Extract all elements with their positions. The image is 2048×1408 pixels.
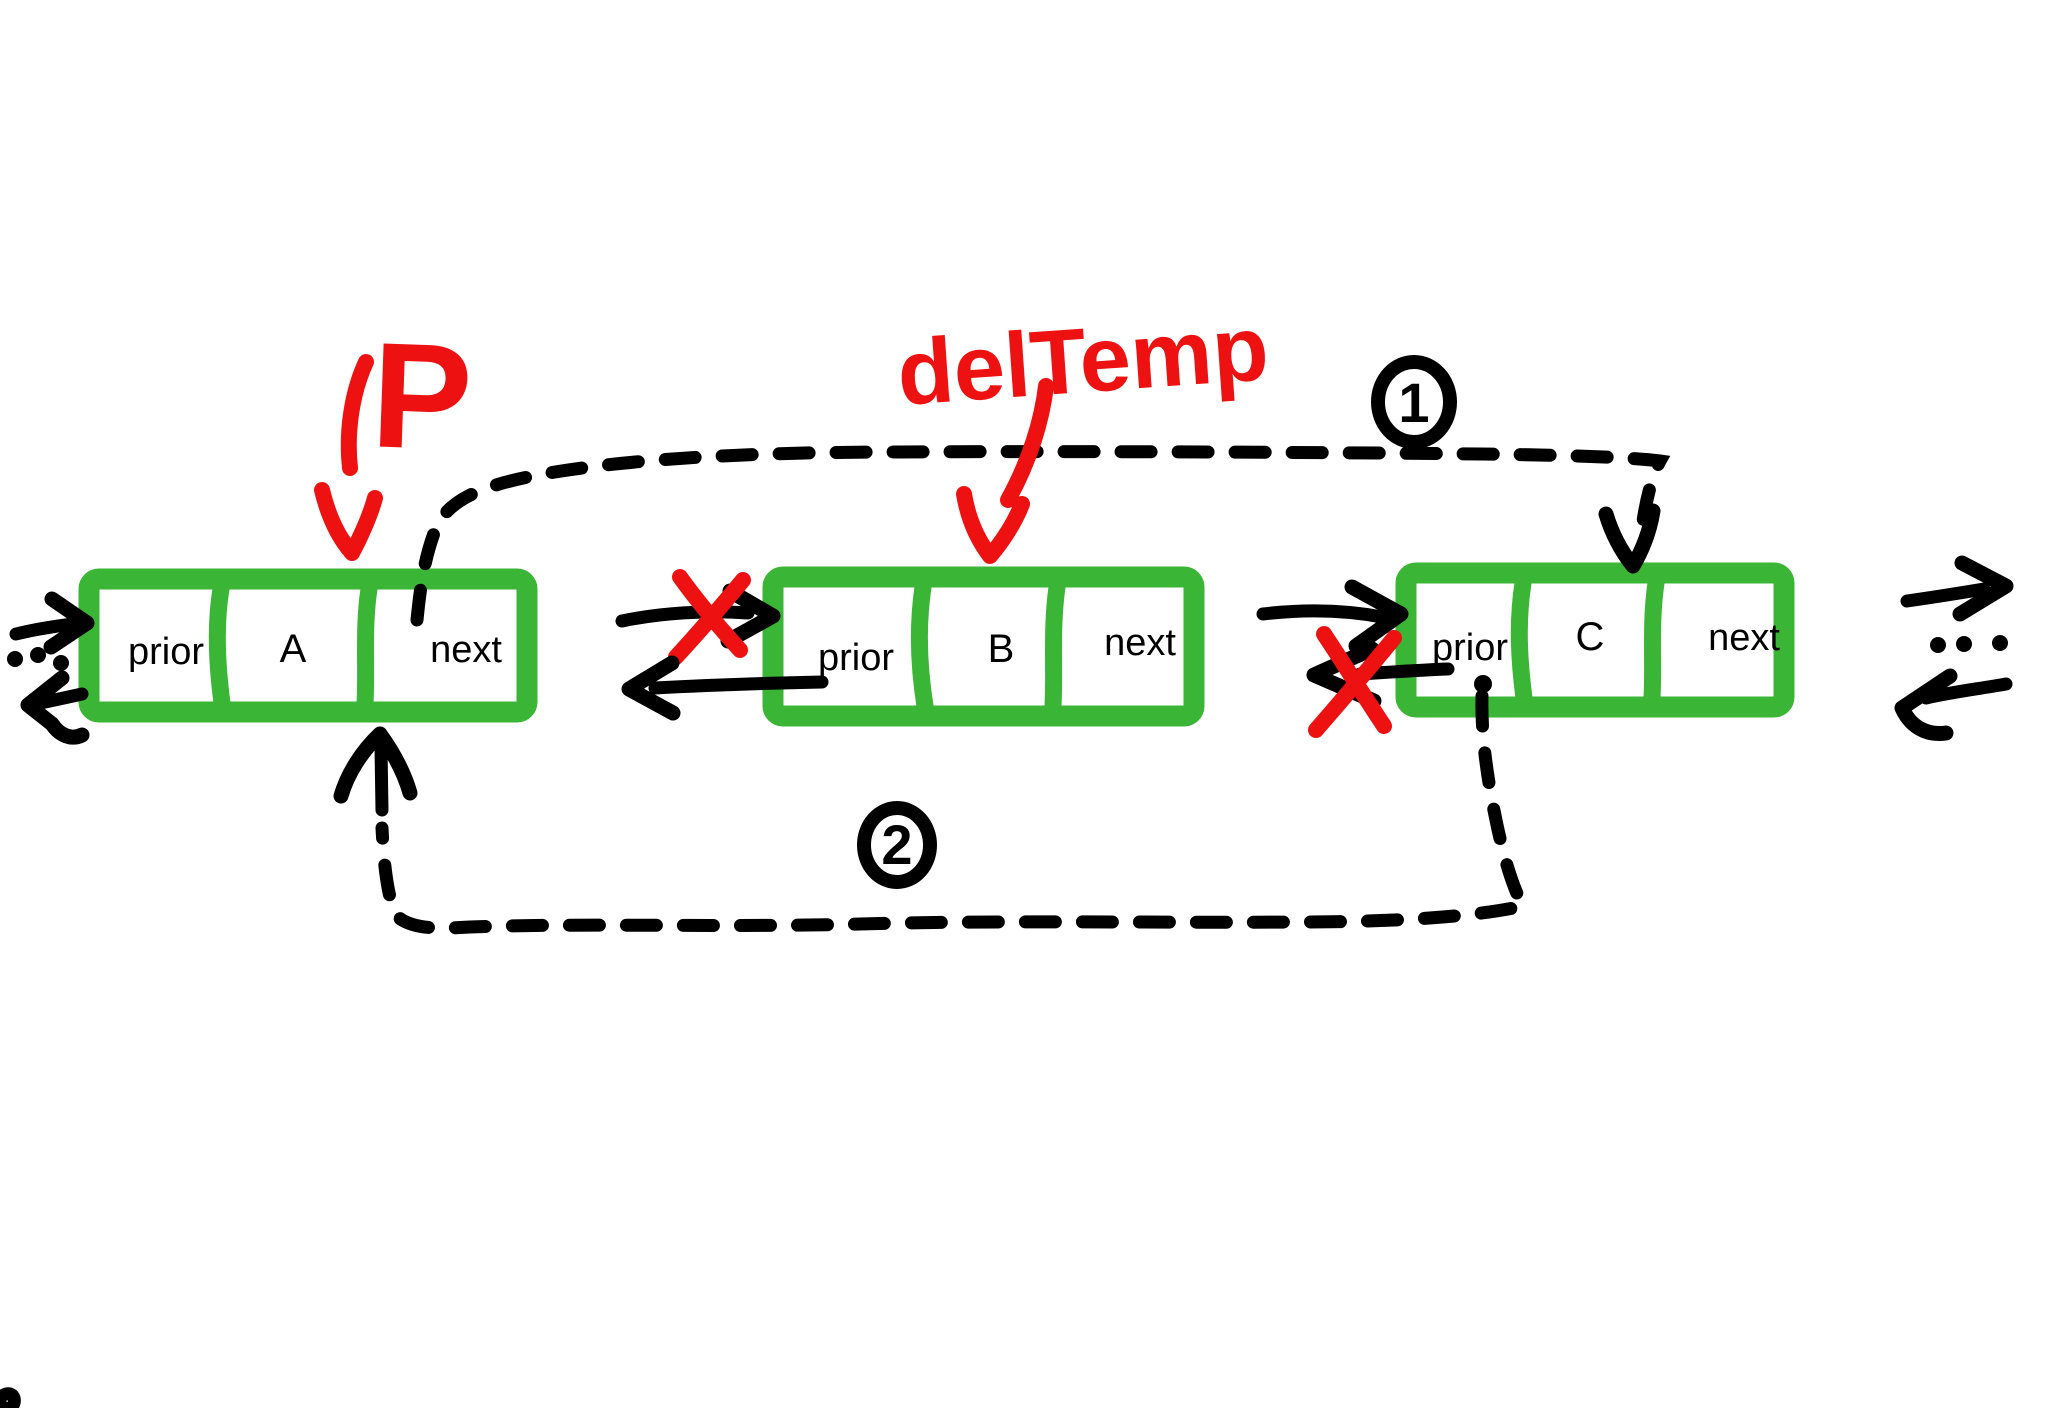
node-b-value-label: B xyxy=(988,627,1015,671)
node-a-prior-label: prior xyxy=(128,631,204,673)
arrow-b-next-to-c-shaft xyxy=(1263,611,1382,617)
node-a-value-label: A xyxy=(280,627,307,671)
node-b: prior B next xyxy=(773,577,1194,716)
pointer-p-annotation: P xyxy=(322,310,475,553)
link-a-next-to-b xyxy=(622,577,773,657)
deltemp-annotation: delTemp xyxy=(894,297,1272,556)
arrow-into-c-head-icon xyxy=(1902,676,1950,734)
dashed-link-2-path xyxy=(382,696,1523,928)
ellipsis-dot xyxy=(53,655,69,671)
linked-list-deletion-diagram: prior A next prior B next prior C next xyxy=(0,0,2048,1408)
node-b-prior-label: prior xyxy=(818,637,894,679)
pointer-p-label: P xyxy=(369,310,475,481)
node-a-divider-1 xyxy=(217,589,222,703)
ellipsis-dot xyxy=(7,651,23,667)
arrow-a-prior-out-head-icon xyxy=(28,678,82,737)
ellipsis-dot xyxy=(30,647,46,663)
ellipsis-dot xyxy=(1992,635,2008,651)
left-edge-links xyxy=(7,599,87,737)
step-1-number: 1 xyxy=(1398,371,1429,434)
pointer-p-arrow-shaft xyxy=(349,362,366,468)
pointer-p-arrowhead-icon xyxy=(322,490,375,553)
step-2-marker: 2 xyxy=(864,808,930,882)
ellipsis-dot xyxy=(1930,637,1946,653)
node-b-next-label: next xyxy=(1104,622,1176,664)
arrow-a-next-to-b-shaft xyxy=(622,612,748,621)
node-b-divider-1 xyxy=(919,587,925,706)
deltemp-label: delTemp xyxy=(894,297,1272,425)
node-c-divider-1 xyxy=(1519,583,1524,698)
step-1-marker: 1 xyxy=(1378,362,1450,442)
sketch-canvas: prior A next prior B next prior C next xyxy=(0,0,2048,1408)
node-a-divider-2 xyxy=(365,589,369,703)
step-2-number: 2 xyxy=(881,813,912,876)
node-c-next-label: next xyxy=(1708,617,1780,659)
node-a: prior A next xyxy=(89,579,527,712)
dashed-link-1-arrowhead-icon xyxy=(1606,511,1653,566)
node-c-value-label: C xyxy=(1576,615,1605,659)
right-edge-links xyxy=(1902,563,2008,734)
node-c: prior C next xyxy=(1406,573,1784,707)
stray-ink-mark xyxy=(1,1394,14,1408)
arrow-b-prior-to-a-shaft xyxy=(655,682,822,688)
ellipsis-dot xyxy=(1956,636,1972,652)
node-b-divider-2 xyxy=(1053,587,1057,706)
node-a-next-label: next xyxy=(430,629,502,671)
dashed-link-2-arrow-shaft xyxy=(381,748,382,810)
node-c-divider-2 xyxy=(1652,583,1656,698)
